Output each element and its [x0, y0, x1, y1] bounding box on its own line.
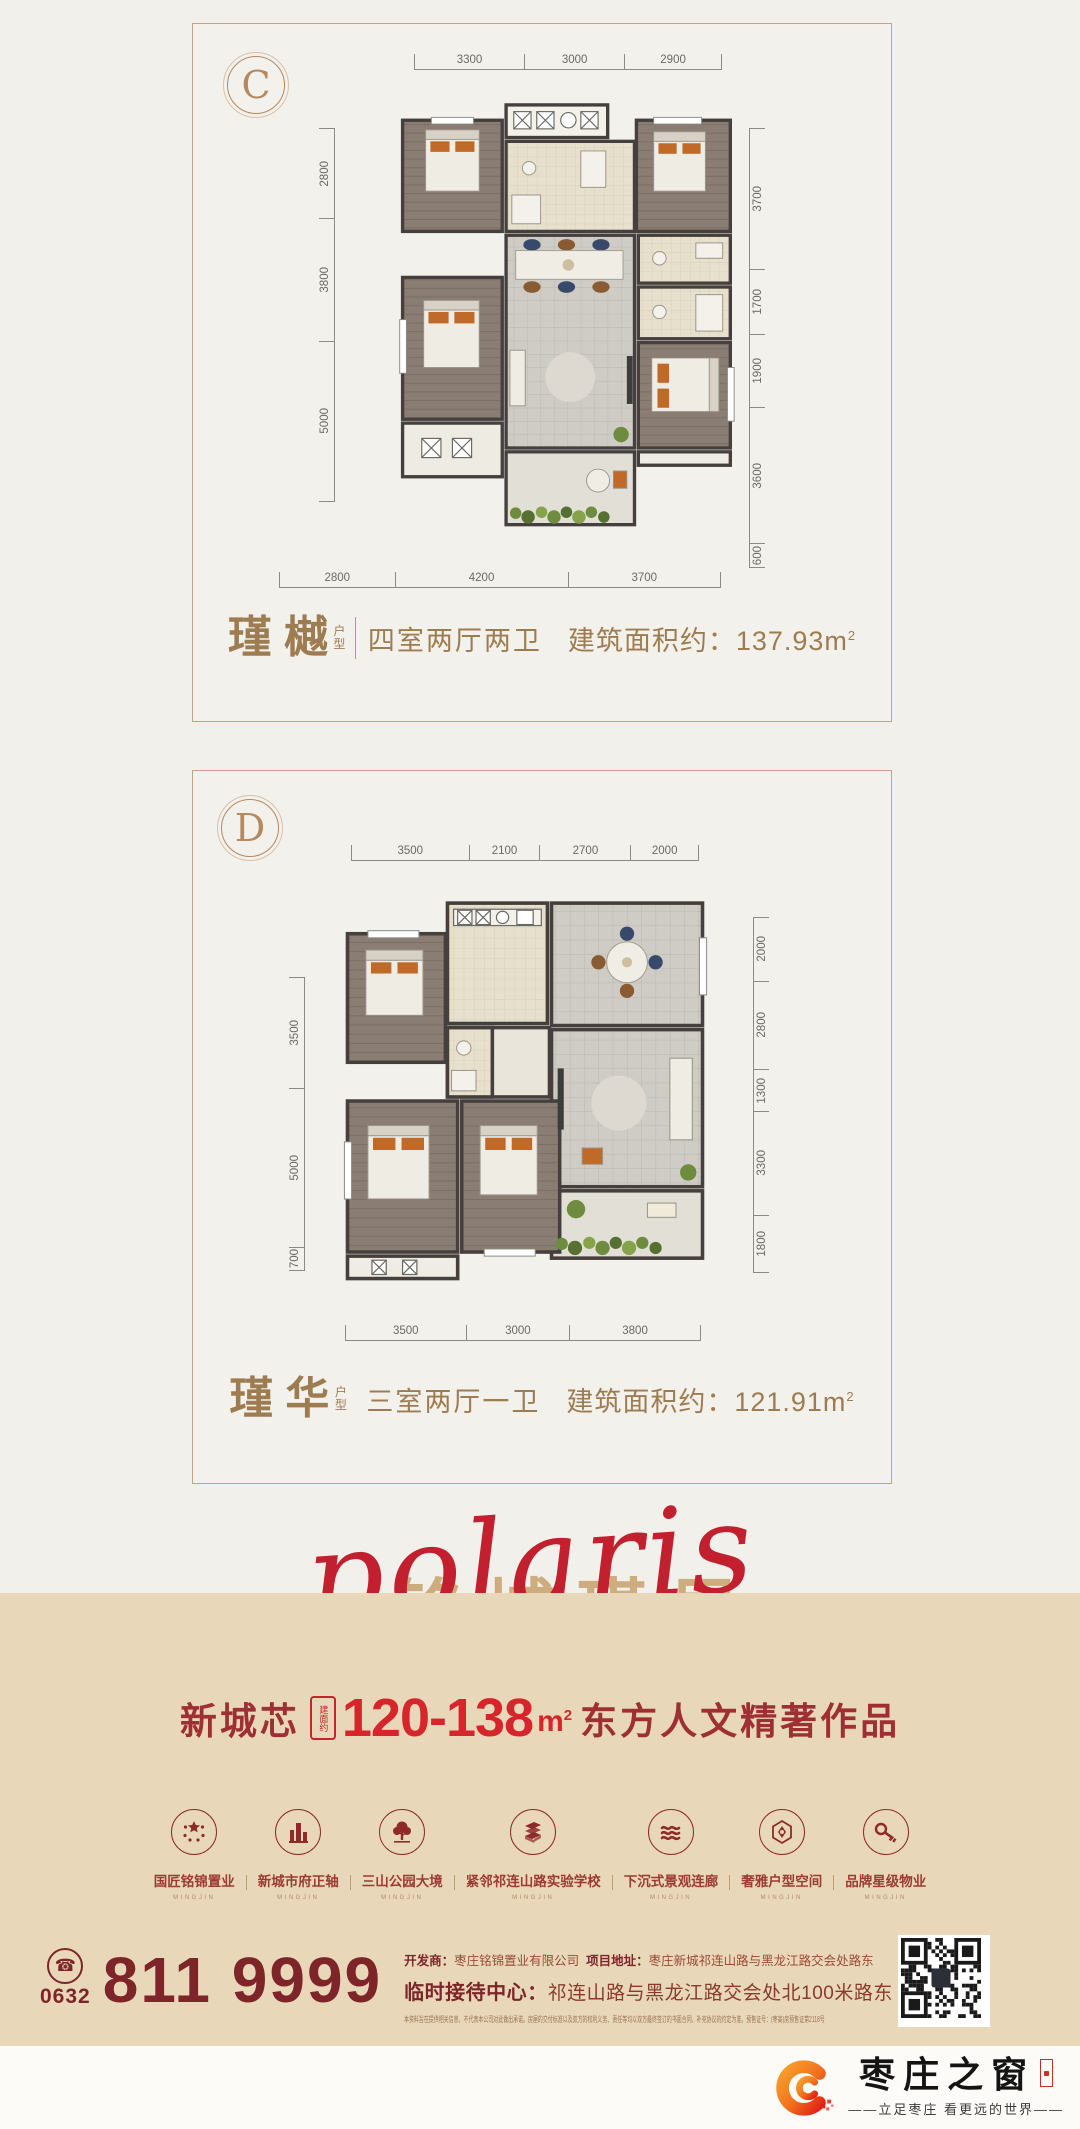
building-icon — [284, 1818, 312, 1846]
plan-d-letter: D — [235, 809, 265, 847]
dim-label: 1300 — [756, 1078, 770, 1104]
plan-d-dims-right: 2000 2800 1300 3300 1800 — [753, 917, 769, 1273]
plan-c-name: 瑾樾 — [228, 616, 340, 660]
amenity-item: 新城市府正轴 MINGJIN — [247, 1809, 350, 1901]
floorplan-card-d: D 3500 2100 2700 2000 3500 5000 700 2000… — [192, 770, 892, 1484]
dim-label: 2800 — [319, 161, 333, 187]
tree-icon — [388, 1818, 416, 1846]
disclaimer: 本资料旨在提供相关信息，不代表本公司对此做出承诺。房屋的交付标准以及双方的权利义… — [404, 2014, 695, 2025]
developer-line: 开发商：枣庄铭锦置业有限公司 项目地址：枣庄新城祁连山路与黑龙江路交会处路东 — [404, 1950, 874, 1969]
dim-label: 1900 — [752, 358, 766, 384]
stars-icon — [180, 1818, 208, 1846]
plan-c-dims-bottom: 2800 4200 3700 — [279, 572, 721, 588]
plan-d-dims-top: 3500 2100 2700 2000 — [351, 845, 699, 861]
dim-label: 2000 — [652, 846, 678, 858]
floorplan-card-c: C 3300 3000 2900 2800 3800 5000 3700 170… — [192, 23, 892, 722]
amenity-item: 三山公园大境 MINGJIN — [351, 1809, 454, 1901]
plan-c-letter: C — [241, 66, 270, 104]
plan-d-area: 建筑面积约：121.91m2 — [566, 1380, 854, 1419]
amenity-item: 国匠铭锦置业 MINGJIN — [143, 1809, 246, 1901]
brand-seal-icon — [1040, 2059, 1053, 2087]
amenity-sub: MINGJIN — [650, 1895, 692, 1901]
caption-divider — [355, 617, 356, 659]
headline-range: 120-138 — [342, 1691, 533, 1745]
reception-line: 临时接待中心：祁连山路与黑龙江路交会处北100米路东 — [404, 1976, 874, 2005]
phone-number: 811 9999 — [103, 1950, 382, 2011]
amenity-label: 品牌星级物业 — [845, 1870, 926, 1890]
brand-name: 枣庄之窗 — [859, 2057, 1035, 2093]
dining-set — [516, 239, 623, 293]
area-seal: 建面约 — [310, 1696, 336, 1740]
headline-city: 新城芯 — [180, 1691, 300, 1745]
dim-label: 700 — [289, 1249, 303, 1268]
dim-label: 3300 — [756, 1150, 770, 1176]
amenity-item: 奢雅户型空间 MINGJIN — [730, 1809, 833, 1901]
dim-label: 3000 — [562, 55, 588, 67]
phone-icon: ☎ — [47, 1948, 83, 1984]
brand-tagline: ——立足枣庄 看更远的世界—— — [848, 2099, 1064, 2118]
dim-label: 4200 — [469, 573, 495, 585]
dim-label: 1700 — [752, 289, 766, 315]
headline-slogan: 东方人文精著作品 — [580, 1691, 900, 1745]
dim-label: 3500 — [393, 1326, 419, 1338]
plan-d-dims-left: 3500 5000 700 — [289, 977, 305, 1271]
info-section: 新城芯 建面约 120-138 m2 东方人文精著作品 国匠铭锦置业 MINGJ… — [0, 1593, 1080, 2046]
amenity-label: 下沉式景观连廊 — [624, 1870, 719, 1890]
books-icon — [519, 1818, 547, 1846]
dim-label: 3300 — [457, 55, 483, 67]
amenity-item: 品牌星级物业 MINGJIN — [834, 1809, 937, 1901]
amenity-label: 新城市府正轴 — [258, 1870, 339, 1890]
amenity-sub: MINGJIN — [381, 1895, 423, 1901]
dim-label: 3800 — [622, 1326, 648, 1338]
amenity-label: 紧邻祁连山路实验学校 — [466, 1870, 601, 1890]
plan-c-dims-right: 3700 1700 1900 3600 600 — [749, 128, 765, 568]
phone-area: ☎ 0632 — [40, 1948, 91, 2009]
footer-bar: 枣庄之窗 ——立足枣庄 看更远的世界—— — [0, 2046, 1080, 2129]
amenity-item: 紧邻祁连山路实验学校 MINGJIN — [455, 1809, 612, 1901]
amenity-sub: MINGJIN — [512, 1895, 554, 1901]
amenity-item: 下沉式景观连廊 MINGJIN — [613, 1809, 730, 1901]
dim-label: 600 — [752, 546, 766, 565]
dim-label: 3000 — [505, 1326, 531, 1338]
dim-label: 2000 — [756, 936, 770, 962]
developer-info: 开发商：枣庄铭锦置业有限公司 项目地址：枣庄新城祁连山路与黑龙江路交会处路东 临… — [404, 1948, 874, 2025]
plan-c-badge: C — [227, 56, 285, 114]
dim-label: 2700 — [573, 846, 599, 858]
plan-c-spec: 四室两厅两卫 — [368, 619, 542, 658]
lattice-icon — [768, 1818, 796, 1846]
amenity-label: 国匠铭锦置业 — [154, 1870, 235, 1890]
plan-d-badge: D — [221, 799, 279, 857]
amenities-row: 国匠铭锦置业 MINGJIN 新城市府正轴 MINGJIN 三山公园大境 MIN… — [0, 1809, 1080, 1901]
area-code: 0632 — [40, 1985, 91, 2009]
qr-code — [898, 1935, 990, 2027]
headline-unit: m2 — [537, 1705, 572, 1739]
amenity-label: 三山公园大境 — [362, 1870, 443, 1890]
plan-c-dims-left: 2800 3800 5000 — [319, 128, 335, 502]
contact-block: ☎ 0632 811 9999 开发商：枣庄铭锦置业有限公司 项目地址：枣庄新城… — [40, 1948, 1040, 2025]
poster: C 3300 3000 2900 2800 3800 5000 3700 170… — [0, 0, 1080, 2129]
dim-label: 3600 — [752, 463, 766, 489]
floor-plan-d — [341, 897, 709, 1301]
waves-icon — [657, 1818, 685, 1846]
dim-label: 2900 — [660, 55, 686, 67]
dim-label: 2800 — [756, 1012, 770, 1038]
plan-d-spec: 三室两厅一卫 — [366, 1380, 540, 1419]
amenity-sub: MINGJIN — [173, 1895, 215, 1901]
amenity-sub: MINGJIN — [277, 1895, 319, 1901]
dim-label: 3800 — [319, 267, 333, 293]
dim-label: 5000 — [319, 408, 333, 434]
dim-label: 1800 — [756, 1231, 770, 1257]
dim-label: 3700 — [752, 186, 766, 212]
dim-label: 5000 — [289, 1155, 303, 1181]
plan-c-type-label: 户型 — [332, 625, 347, 651]
key-icon — [872, 1818, 900, 1846]
dim-label: 3700 — [631, 573, 657, 585]
qr-pattern — [901, 1938, 981, 2018]
plan-c-caption: 瑾樾 户型 四室两厅两卫 建筑面积约：137.93m2 — [193, 616, 891, 660]
plan-d-caption: 瑾华 户型 三室两厅一卫 建筑面积约：121.91m2 — [193, 1377, 891, 1421]
media-brand: 枣庄之窗 ——立足枣庄 看更远的世界—— — [772, 2057, 1064, 2119]
plan-c-dims-top: 3300 3000 2900 — [414, 54, 722, 70]
dim-label: 2100 — [492, 846, 518, 858]
brand-text: 枣庄之窗 ——立足枣庄 看更远的世界—— — [848, 2057, 1064, 2118]
amenity-label: 奢雅户型空间 — [741, 1870, 822, 1890]
headline: 新城芯 建面约 120-138 m2 东方人文精著作品 — [0, 1691, 1080, 1745]
dim-label: 3500 — [289, 1020, 303, 1046]
plan-d-type-label: 户型 — [333, 1386, 348, 1412]
dim-label: 3500 — [397, 846, 423, 858]
plan-c-area: 建筑面积约：137.93m2 — [568, 619, 856, 658]
swirl-e-logo — [772, 2057, 834, 2119]
floor-plan-c — [393, 94, 738, 549]
plan-d-name: 瑾华 — [229, 1377, 341, 1421]
amenity-sub: MINGJIN — [865, 1895, 907, 1901]
plan-d-dims-bottom: 3500 3000 3800 — [345, 1325, 701, 1341]
amenity-sub: MINGJIN — [761, 1895, 803, 1901]
dim-label: 2800 — [325, 573, 351, 585]
